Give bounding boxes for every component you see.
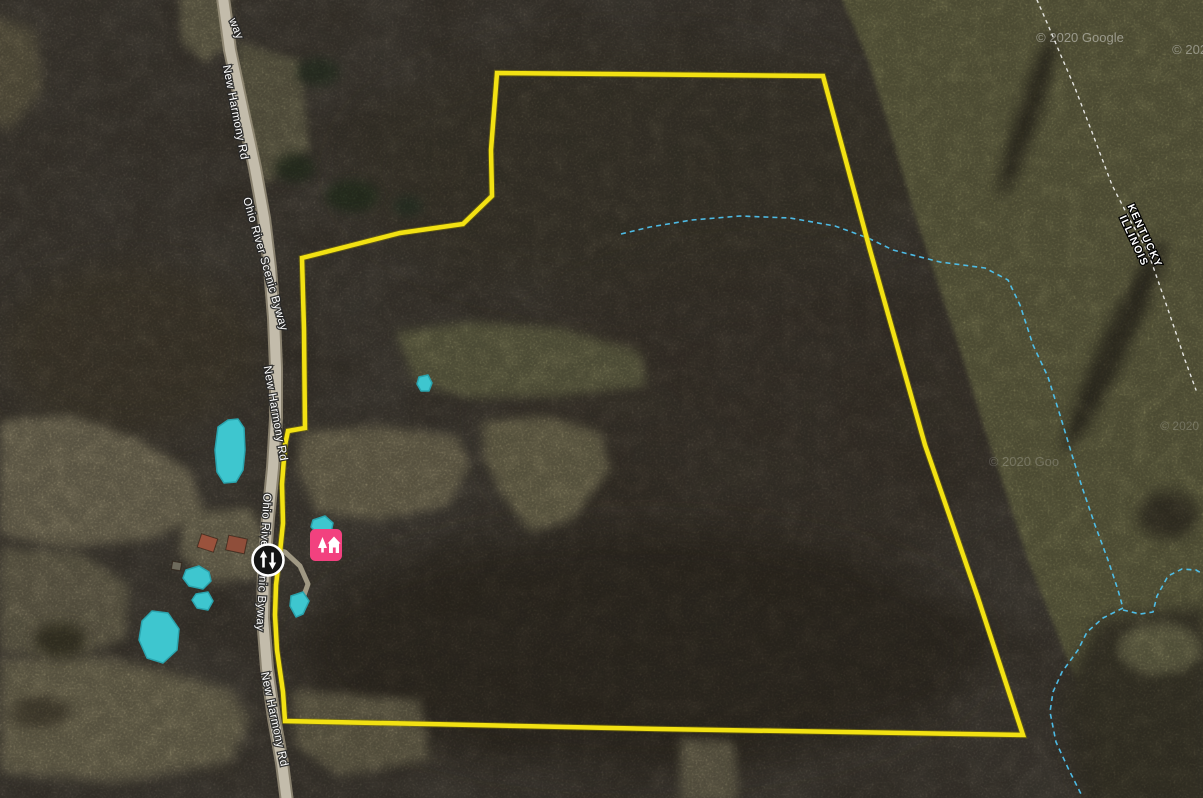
building-roof xyxy=(226,535,248,554)
google-watermark: © 2020 G xyxy=(1160,419,1203,433)
pond[interactable] xyxy=(215,419,245,483)
building-roof xyxy=(171,561,181,570)
terrain-streak-texture xyxy=(0,0,1203,798)
cabin-marker[interactable] xyxy=(310,529,342,561)
google-watermark: © 2020 Google xyxy=(1172,42,1203,57)
google-watermark: © 2020 Goo xyxy=(989,454,1059,469)
map-svg: wayNew Harmony RdOhio River Scenic Byway… xyxy=(0,0,1203,798)
swap-arrows-marker[interactable] xyxy=(253,545,284,576)
pond[interactable] xyxy=(417,375,432,391)
satellite-map-canvas[interactable]: wayNew Harmony RdOhio River Scenic Byway… xyxy=(0,0,1203,798)
google-watermark: © 2020 Google xyxy=(1036,30,1124,45)
